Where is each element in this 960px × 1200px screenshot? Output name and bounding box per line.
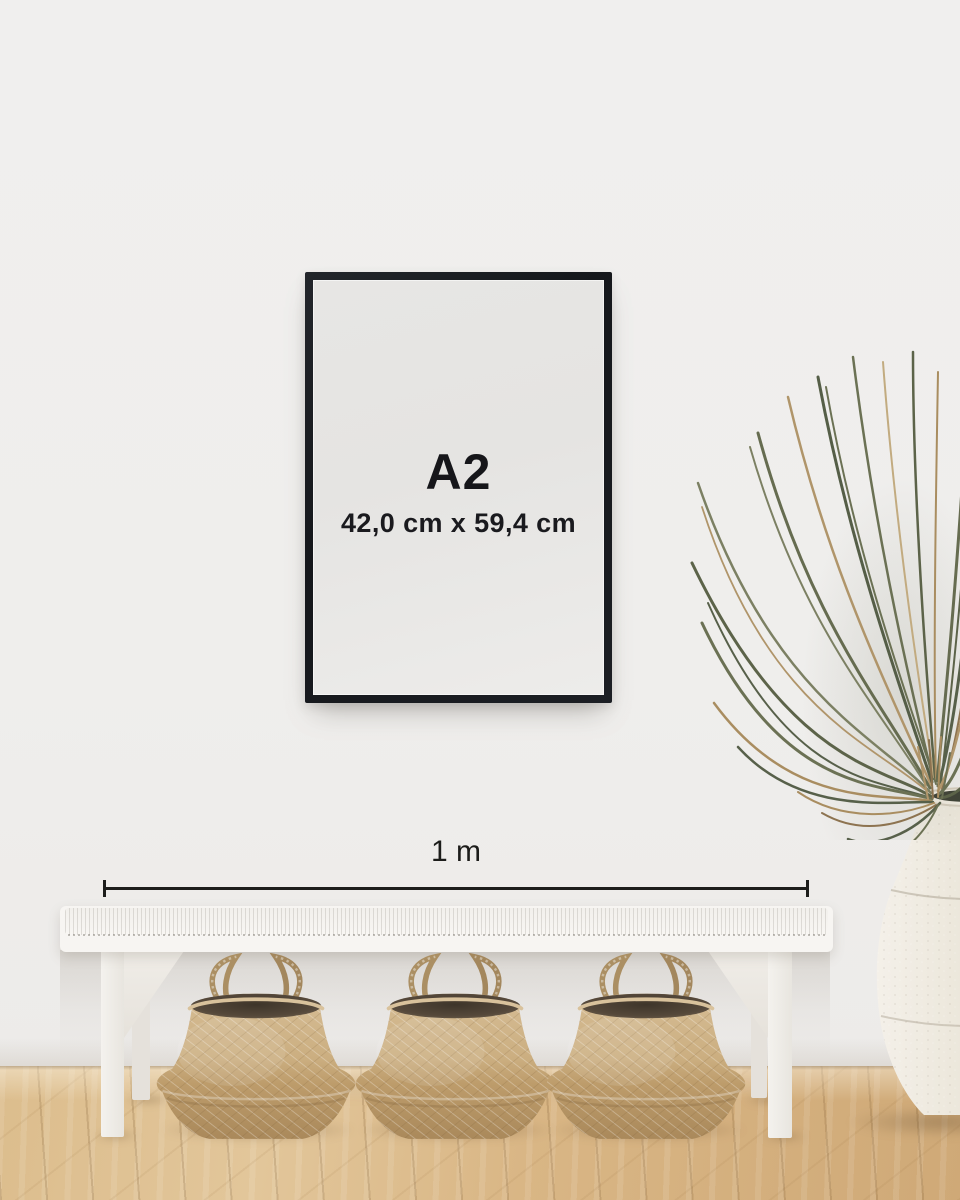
bench-weave-seam — [68, 934, 825, 936]
size-guide-photo: A2 42,0 cm x 59,4 cm 1 m — [0, 0, 960, 1200]
bench-leg-front-right — [768, 948, 792, 1138]
bench-leg-front-left — [101, 948, 124, 1137]
poster-size-label: A2 — [313, 443, 604, 501]
bench-woven-top — [65, 908, 828, 935]
poster-frame: A2 42,0 cm x 59,4 cm — [305, 272, 612, 703]
scale-bar — [103, 887, 809, 890]
bench-front-edge — [60, 937, 833, 952]
palm-plant — [650, 335, 960, 840]
scale-label: 1 m — [103, 835, 809, 869]
poster-dimensions-label: 42,0 cm x 59,4 cm — [313, 508, 604, 539]
bench-seat — [60, 906, 833, 952]
seagrass-basket-right — [523, 953, 769, 1150]
poster: A2 42,0 cm x 59,4 cm — [313, 280, 604, 695]
